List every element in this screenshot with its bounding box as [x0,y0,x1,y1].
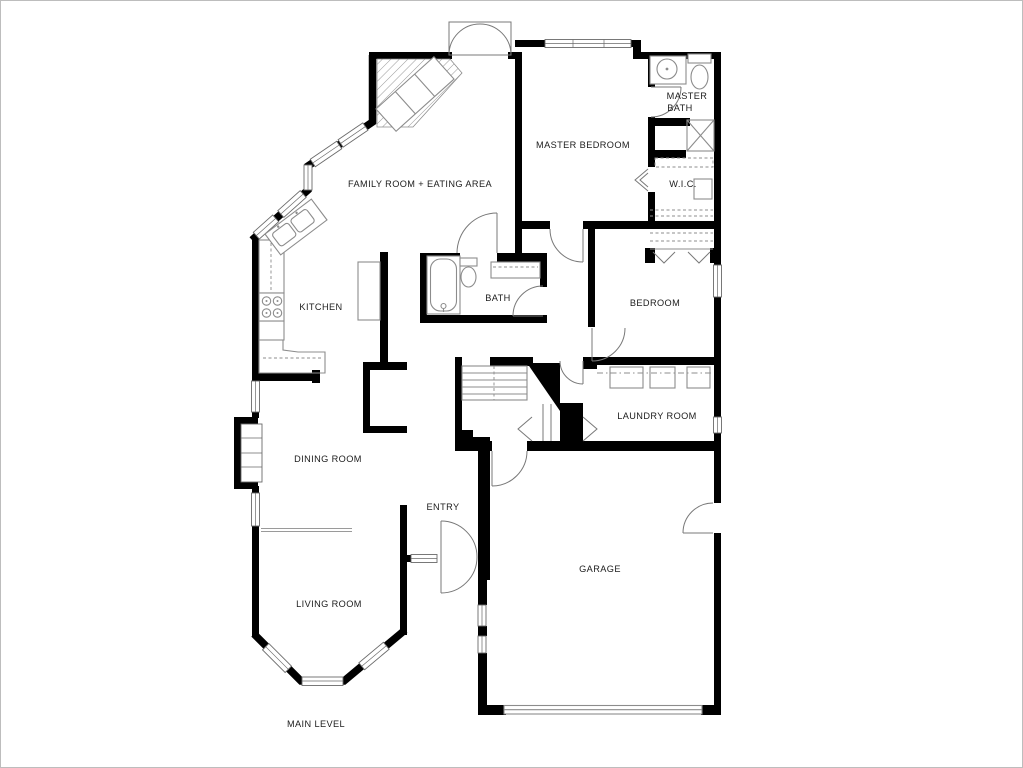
floor-plan-page: FAMILY ROOM + EATING AREA MASTER BEDROOM… [0,0,1023,768]
french-doors [449,22,511,55]
living-room-label: LIVING ROOM [296,599,362,609]
bath-vanity [491,262,540,278]
garage-door [504,706,702,715]
walls [234,40,721,715]
refrigerator [358,262,380,320]
window [359,642,389,669]
bedroom-label: BEDROOM [630,298,680,308]
washer-dryer-units [597,367,713,388]
bath-label: BATH [485,293,510,303]
window [252,493,260,526]
kitchen-label: KITCHEN [299,302,342,312]
main-level-label: MAIN LEVEL [287,719,345,729]
window [714,417,722,433]
fireplace [376,57,462,131]
garage-side-door [683,503,713,533]
window [310,141,342,166]
sidelite-window [411,555,437,563]
master-bath-label-2: BATH [667,103,692,113]
window [304,165,312,190]
bath-toilet [460,258,477,287]
garage-entry-door [492,451,527,486]
bathtub [427,256,460,314]
dining-room-label: DINING ROOM [294,454,362,464]
laundry-door [560,361,583,384]
window [545,40,631,48]
shower [687,120,714,151]
window [302,677,343,686]
entry-label: ENTRY [427,502,460,512]
window [263,644,292,673]
master-bedroom-label: MASTER BEDROOM [536,140,630,150]
stairs [462,366,527,400]
room-labels: FAMILY ROOM + EATING AREA MASTER BEDROOM… [287,91,707,729]
kitchen-sink [265,199,327,255]
window [478,636,486,653]
hall-door-swing [457,213,497,253]
master-bath-toilet [688,54,711,89]
garage-label: GARAGE [579,564,621,574]
bedroom-closet-shelving [650,233,713,249]
window [252,381,260,412]
bath-door [513,286,543,316]
stove [259,293,284,321]
room-opening-line [261,529,352,532]
bedroom-door [592,328,625,361]
wic-doorway [635,169,648,191]
bay-window-unit [241,424,262,482]
window [714,265,722,297]
master-bedroom-door [550,229,583,262]
laundry-room-label: LAUNDRY ROOM [617,411,697,421]
window [338,123,368,147]
closet-bifold-doors [653,252,710,263]
front-door [441,521,477,593]
master-bath-label-1: MASTER [667,91,708,101]
family-room-label: FAMILY ROOM + EATING AREA [348,179,492,189]
wic-label: W.I.C. [669,179,696,189]
floor-plan-svg: FAMILY ROOM + EATING AREA MASTER BEDROOM… [0,0,1023,768]
window [478,605,486,626]
understairs-bifold-doors [518,404,597,441]
master-bath-sink [650,56,686,84]
